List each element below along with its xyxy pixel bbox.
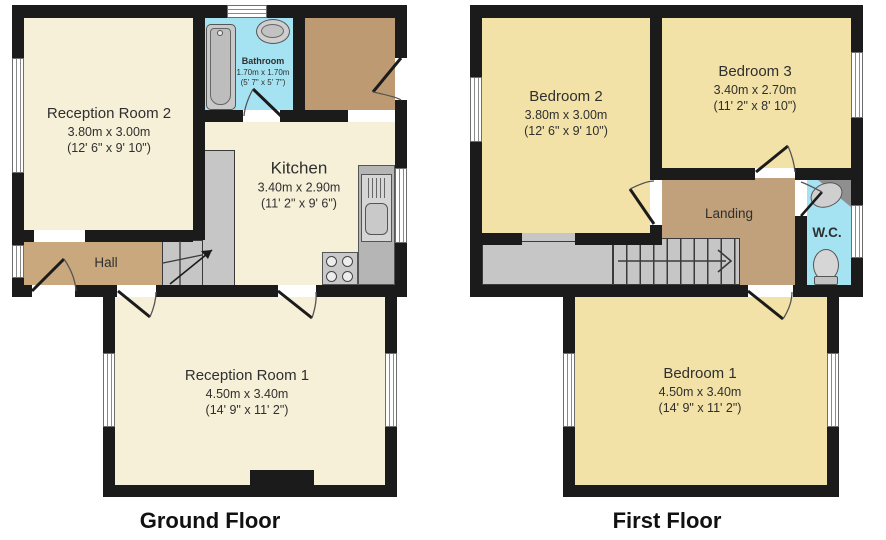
hall-window (12, 245, 24, 278)
wall (12, 5, 227, 18)
landing-label: Landing (705, 205, 753, 223)
reception1-window-left (103, 353, 115, 427)
wall (793, 285, 863, 297)
entrance-room (305, 18, 395, 110)
ground-floor-title: Ground Floor (140, 508, 281, 534)
first-landing-corridor (482, 241, 613, 285)
wall (316, 285, 407, 297)
wall (12, 18, 24, 58)
sink-drainer (365, 178, 388, 198)
wall (12, 173, 24, 245)
bathroom-basin (256, 19, 290, 44)
wall (395, 18, 407, 58)
wall (575, 285, 748, 297)
kitchen-window (395, 168, 407, 243)
toilet-cistern (814, 276, 838, 285)
basin-inner (261, 24, 284, 38)
wall (795, 216, 807, 285)
wall (470, 5, 863, 18)
bedroom2-window (470, 77, 482, 142)
first-floor-title: First Floor (613, 508, 722, 534)
wall (395, 100, 407, 168)
wall (851, 18, 863, 52)
wall (470, 18, 482, 77)
wall (575, 233, 662, 245)
hall-label: Hall (94, 254, 117, 272)
wall (280, 110, 305, 122)
wall (827, 427, 839, 497)
sink-bowl (365, 203, 388, 235)
ground-stair-winder (162, 240, 203, 286)
bedroom1-window-left (563, 353, 575, 427)
wall (24, 230, 34, 242)
first-stair-flight (613, 238, 740, 285)
chimney-breast (250, 470, 314, 487)
hob-burner (342, 271, 353, 282)
wall (470, 285, 575, 297)
wall (385, 297, 397, 353)
wall (267, 5, 407, 18)
floorplan-canvas: Reception Room 2 3.80m x 3.00m (12' 6" x… (0, 0, 886, 540)
wall (305, 110, 348, 122)
kitchen-label: Kitchen 3.40m x 2.90m (11' 2" x 9' 6") (258, 158, 341, 213)
bathtub (206, 24, 236, 110)
hob-burner (342, 256, 353, 267)
bathroom-label: Bathroom 1.70m x 1.70m (5' 7" x 5' 7") (237, 56, 290, 88)
bedroom2-label: Bedroom 2 3.80m x 3.00m (12' 6" x 9' 10"… (524, 87, 608, 139)
wall (795, 168, 851, 180)
wall (851, 118, 863, 205)
wc-window (851, 205, 863, 258)
wall (563, 297, 575, 353)
wall (482, 233, 522, 245)
bathroom-window (227, 5, 267, 18)
bedroom3-label: Bedroom 3 3.40m x 2.70m (11' 2" x 8' 10"… (714, 62, 797, 114)
reception2-window (12, 58, 24, 173)
wall (103, 297, 115, 353)
wall (12, 285, 32, 297)
wall (662, 168, 755, 180)
wall (205, 110, 243, 122)
reception1-window-right (385, 353, 397, 427)
hob-burner (326, 271, 337, 282)
wall (75, 285, 117, 297)
reception2-label: Reception Room 2 3.80m x 3.00m (12' 6" x… (47, 104, 171, 156)
wall (650, 18, 662, 180)
bedroom3-window (851, 52, 863, 118)
wall (193, 18, 205, 240)
wall (385, 427, 397, 497)
hob-burner (326, 256, 337, 267)
wall (470, 142, 482, 297)
bathtub-inner (210, 28, 231, 105)
wall (156, 285, 278, 297)
bedroom1-window-right (827, 353, 839, 427)
wall (563, 485, 839, 497)
wall (85, 230, 193, 242)
wall (293, 18, 305, 110)
wall (827, 297, 839, 353)
ground-stair-flight (202, 150, 235, 287)
bathtub-tap (217, 30, 223, 36)
bedroom1-label: Bedroom 1 4.50m x 3.40m (14' 9" x 11' 2"… (659, 364, 742, 416)
wc-label: W.C. (812, 224, 841, 242)
reception1-label: Reception Room 1 4.50m x 3.40m (14' 9" x… (185, 366, 309, 418)
